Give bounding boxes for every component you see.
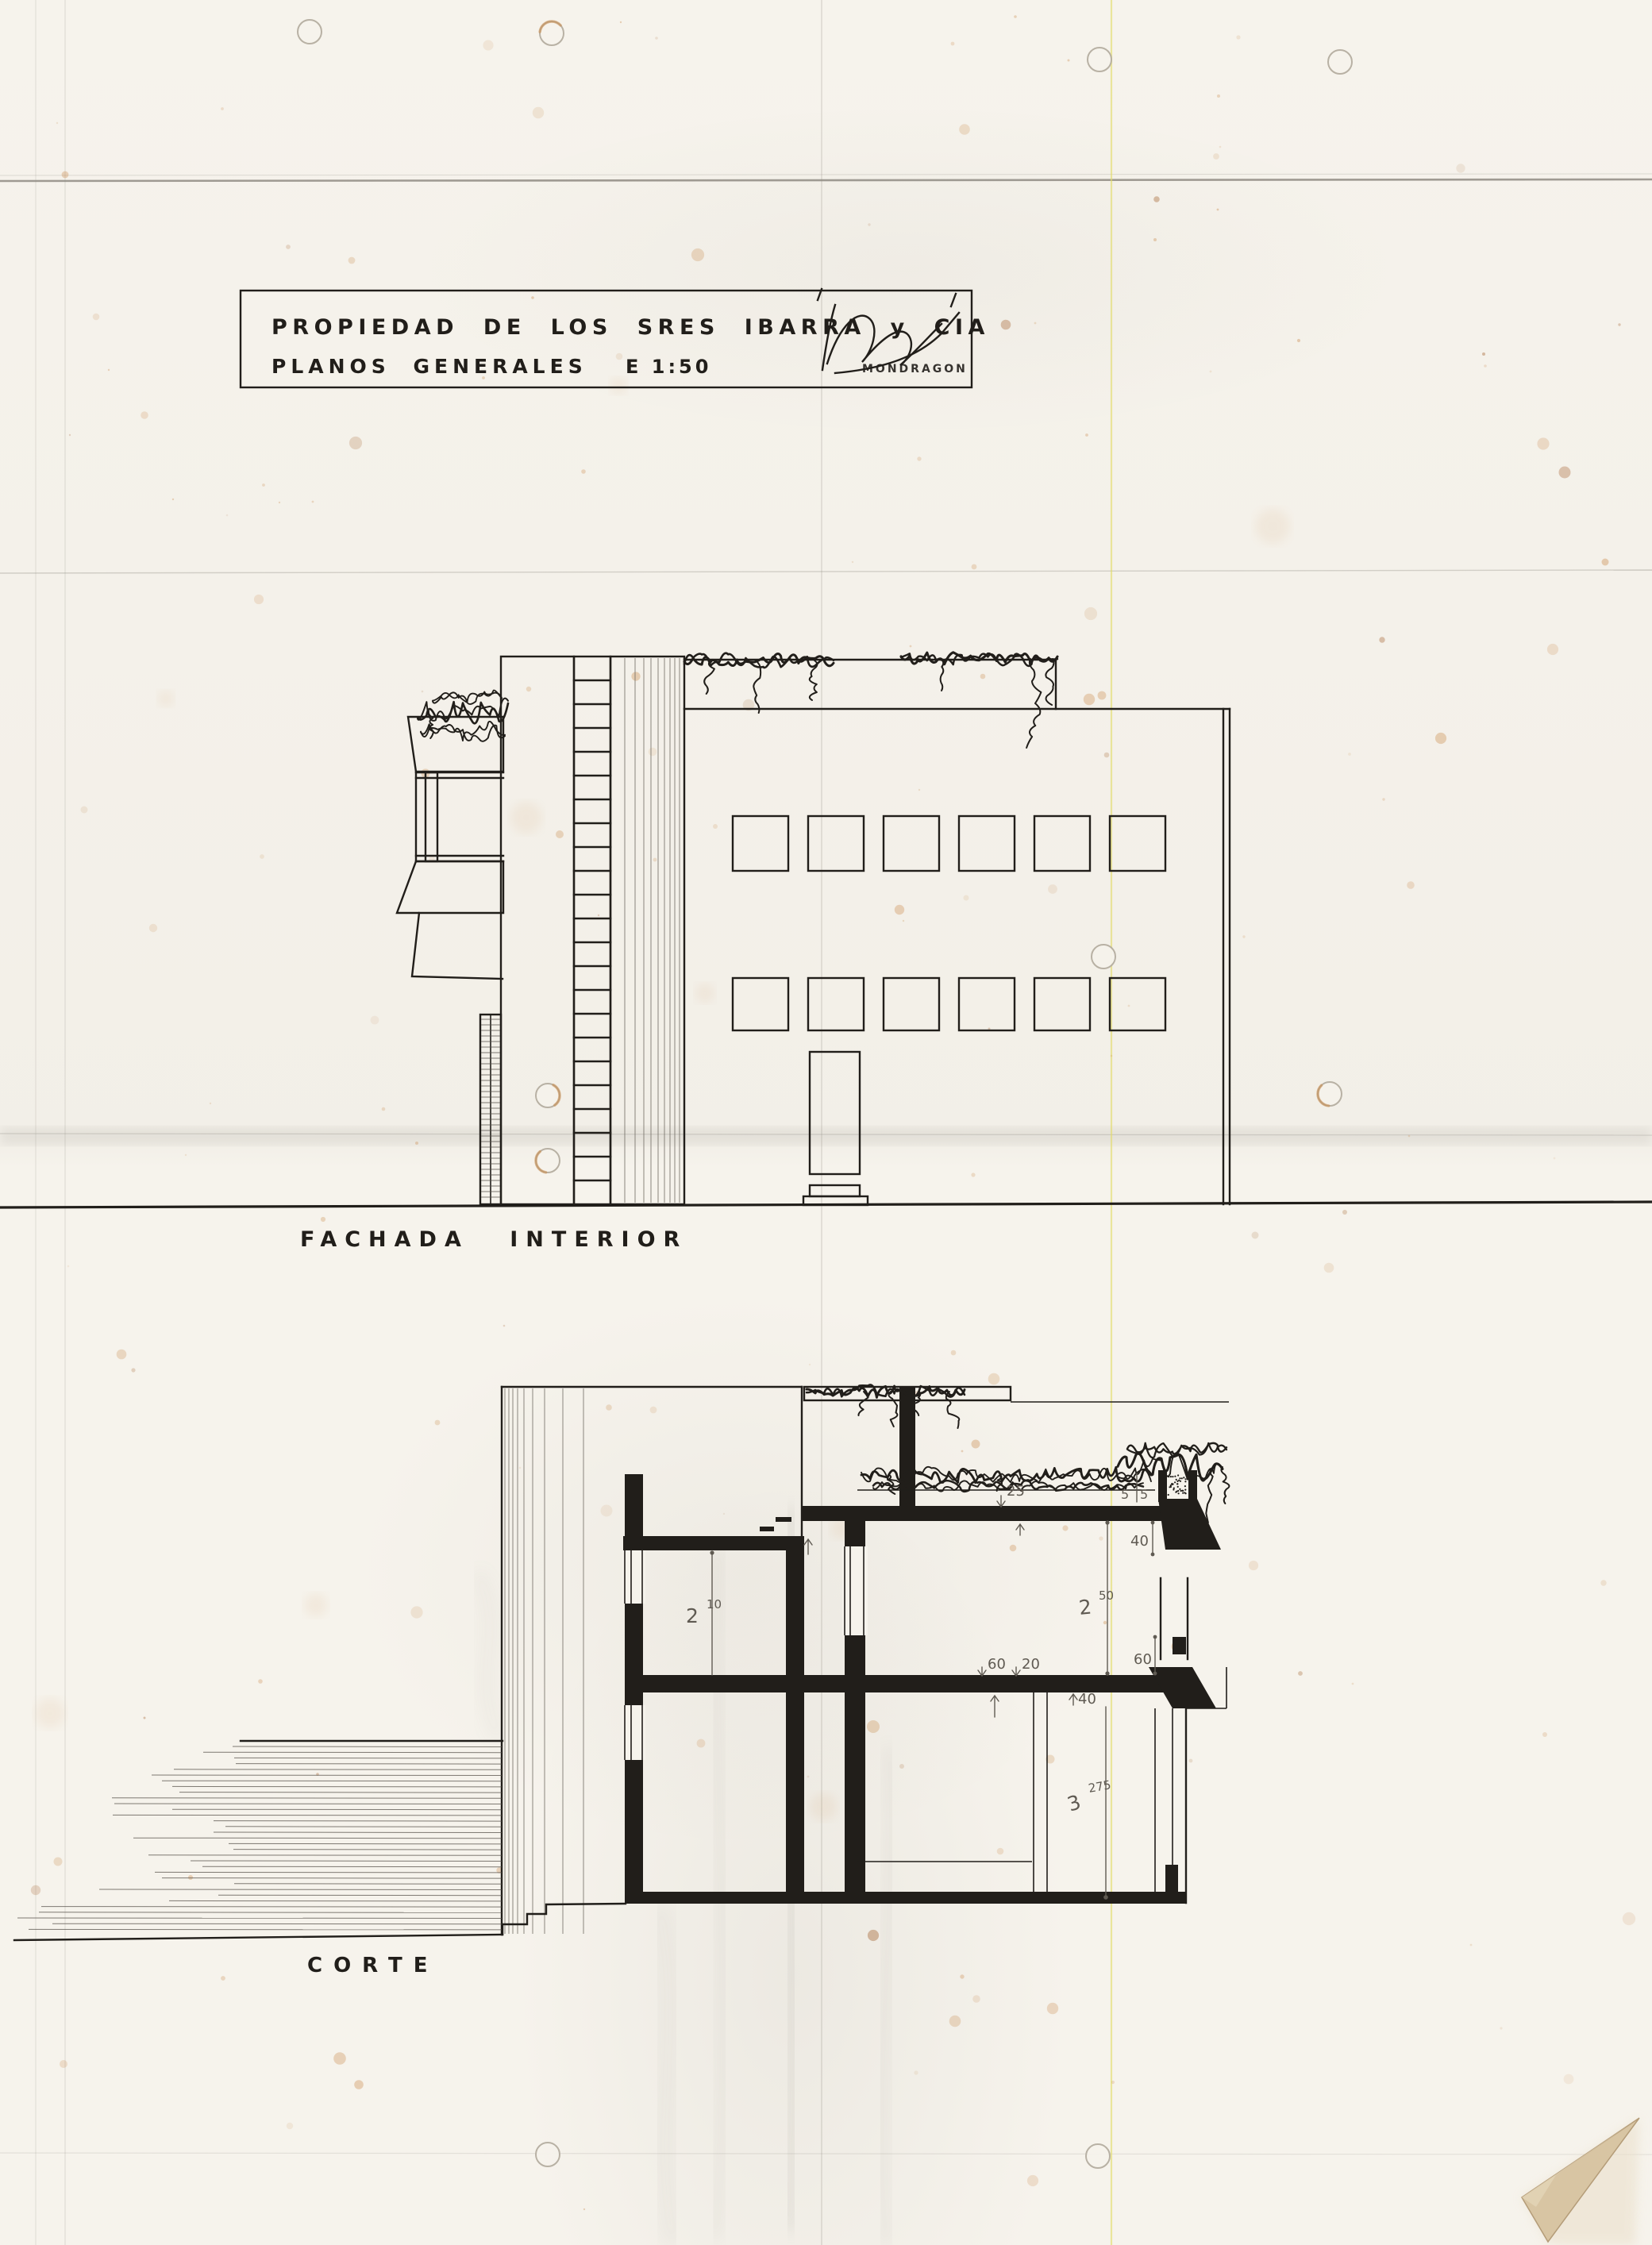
hatch-line	[233, 1850, 502, 1850]
stain	[972, 1440, 980, 1449]
stain	[655, 37, 658, 40]
stain	[964, 895, 969, 901]
section-mid-wall	[786, 1550, 804, 1903]
stipple-dot	[1180, 1490, 1182, 1492]
hatch-line	[172, 1786, 502, 1787]
stain	[371, 1016, 379, 1025]
hatch-line	[39, 1912, 502, 1913]
facade-window	[884, 816, 939, 871]
stain	[1407, 881, 1415, 889]
stain	[918, 789, 920, 791]
stipple-dot	[1185, 1478, 1187, 1480]
stain	[1103, 1621, 1107, 1624]
wall3-window	[842, 1546, 868, 1635]
dim-60-right: 60	[1134, 1651, 1152, 1668]
stain	[895, 905, 904, 915]
stain	[185, 1154, 187, 1156]
dim-5a: 5	[1121, 1487, 1129, 1502]
stain	[321, 1217, 325, 1222]
stain	[67, 1265, 70, 1268]
stain	[949, 2016, 961, 2027]
stain	[1456, 164, 1465, 172]
stain	[62, 171, 69, 179]
stipple-dot	[1176, 1479, 1177, 1481]
hatch-line	[214, 1821, 502, 1822]
stipple-dot	[1177, 1486, 1179, 1488]
hatch-line	[155, 1872, 502, 1873]
signature-name: MONDRAGON	[862, 363, 968, 375]
dim-3-275-sup: 275	[1088, 1777, 1112, 1796]
left-wall-window-upper	[622, 1550, 645, 1604]
hatch-line	[17, 1918, 502, 1919]
dim-60-slab: 60	[988, 1656, 1006, 1673]
stipple-dot	[1175, 1492, 1176, 1493]
floor-slab	[625, 1675, 1175, 1692]
stain	[1085, 433, 1088, 437]
stain	[1219, 146, 1222, 148]
stain	[868, 223, 870, 225]
vine-tendril	[753, 660, 761, 713]
stain	[1084, 694, 1095, 705]
stain-large	[695, 984, 715, 1003]
stain	[1027, 2175, 1038, 2186]
stain	[697, 1739, 706, 1748]
vine-tendril	[941, 659, 944, 691]
vine-tendril	[1026, 659, 1041, 748]
stain	[1217, 94, 1220, 98]
dim-2-10-sup: 10	[707, 1597, 722, 1612]
dim-20-slab: 20	[1022, 1656, 1040, 1673]
stain	[1470, 1944, 1473, 1947]
planter-soil-stipple	[1168, 1474, 1187, 1496]
roof-slab-left	[623, 1536, 804, 1550]
stain	[972, 1995, 980, 2003]
dim-2-10: 2	[686, 1604, 699, 1627]
stain	[1236, 35, 1240, 39]
stipple-dot	[1174, 1476, 1176, 1477]
stain	[1001, 320, 1011, 330]
facade-window	[1110, 816, 1165, 871]
hatch-line	[172, 1809, 502, 1810]
stain	[410, 1606, 422, 1618]
scanned-blueprint-sheet: PROPIEDAD DE LOS SRES IBARRA y CIA PLANO…	[0, 0, 1652, 2245]
facade-window	[808, 816, 864, 871]
stain	[287, 2123, 293, 2129]
stipple-dot	[1170, 1486, 1172, 1488]
stain	[581, 469, 586, 474]
stipple-dot	[1176, 1483, 1178, 1484]
hatch-line	[162, 1781, 502, 1781]
drawing-canvas: PROPIEDAD DE LOS SRES IBARRA y CIA PLANO…	[0, 0, 1652, 2245]
punch-hole	[1328, 50, 1352, 74]
stipple-dot	[1179, 1488, 1180, 1490]
hatch-line	[233, 1746, 502, 1747]
stain	[1084, 607, 1097, 620]
stain	[910, 645, 912, 648]
hatch-line	[52, 1923, 502, 1924]
stain	[1099, 1536, 1103, 1540]
stain	[1352, 1683, 1354, 1685]
stain	[899, 1764, 904, 1769]
stipple-dot	[1180, 1481, 1181, 1482]
facade-drawing: FACHADA INTERIOR	[0, 653, 1652, 1252]
stain	[1484, 364, 1487, 368]
facade-ladder-strip	[574, 657, 610, 1204]
stipple-dot	[1184, 1481, 1186, 1482]
stain-large	[510, 802, 542, 834]
stain	[972, 564, 977, 570]
dim-5b: 5	[1140, 1487, 1148, 1502]
stain	[1542, 1732, 1547, 1737]
vine-tendril	[704, 660, 714, 694]
roof-planter	[1158, 1470, 1221, 1550]
stain	[1249, 1561, 1258, 1570]
stain	[188, 1875, 193, 1880]
facade-label: FACHADA INTERIOR	[300, 1227, 687, 1252]
stipple-dot	[1184, 1492, 1185, 1493]
facade-window	[959, 816, 1015, 871]
stain	[1623, 1912, 1635, 1925]
stipple-dot	[1174, 1481, 1176, 1483]
stain	[519, 1467, 522, 1469]
hatch-line	[203, 1752, 502, 1753]
stain	[1010, 1545, 1017, 1552]
stain-large	[35, 1698, 65, 1728]
stain	[54, 1858, 63, 1866]
stain	[914, 2070, 918, 2074]
stain	[649, 748, 657, 757]
stain	[961, 1450, 964, 1453]
hatch-line	[179, 1793, 502, 1793]
hatch-line	[162, 1878, 502, 1879]
balcony-pier	[426, 772, 437, 861]
stain	[1111, 1055, 1113, 1057]
stain	[867, 1720, 880, 1733]
title-owner-line: PROPIEDAD DE LOS SRES IBARRA y CIA	[271, 315, 990, 340]
stain	[807, 1776, 810, 1778]
stain	[852, 561, 853, 563]
stipple-dot	[1173, 1488, 1174, 1490]
stain	[650, 1407, 657, 1414]
stain	[606, 1404, 612, 1411]
facade-window	[733, 978, 788, 1030]
stain	[713, 824, 718, 829]
stipple-dot	[1179, 1477, 1180, 1479]
stipple-dot	[1172, 1476, 1173, 1477]
facade-balcony	[397, 717, 503, 979]
stain	[1547, 644, 1558, 655]
stain	[286, 245, 291, 249]
hatch-line	[236, 1764, 502, 1765]
stain	[60, 2060, 67, 2068]
stain	[960, 1974, 964, 1978]
hatch-line	[114, 1804, 502, 1804]
hatch-line	[29, 1929, 502, 1930]
stain	[117, 1350, 127, 1360]
stain	[1482, 352, 1485, 356]
punch-hole	[1092, 945, 1115, 968]
hatch-line	[169, 1900, 502, 1901]
stain	[141, 411, 148, 419]
stain	[1435, 733, 1446, 744]
facade-window	[733, 816, 788, 871]
stain	[483, 40, 493, 50]
stain	[56, 122, 58, 124]
stain	[653, 858, 657, 862]
section-label: CORTE	[307, 1954, 439, 1977]
title-scale: E 1:50	[626, 356, 711, 378]
stain	[172, 499, 174, 500]
stain	[348, 257, 356, 264]
stain-large	[158, 691, 174, 707]
dim-3-275: 3	[1065, 1790, 1084, 1816]
stain	[988, 1373, 1000, 1385]
stain	[533, 107, 544, 118]
facade-vines	[418, 653, 1057, 748]
stain-large	[1255, 509, 1290, 544]
stain	[1111, 2081, 1115, 2084]
stain	[1098, 691, 1107, 700]
stain	[149, 924, 157, 932]
punch-hole	[536, 2143, 560, 2166]
stipple-dot	[1172, 1484, 1173, 1485]
stain	[1153, 196, 1160, 202]
facade-window	[959, 978, 1015, 1030]
stain	[691, 248, 704, 261]
dim-40-top: 40	[1130, 1533, 1149, 1550]
stain	[531, 296, 534, 299]
facade-tower	[501, 657, 574, 1204]
stain	[1210, 371, 1212, 373]
stain	[997, 1848, 1004, 1855]
hatch-line	[113, 1815, 502, 1816]
hatch-line	[99, 1889, 502, 1890]
punch-hole	[1086, 2144, 1110, 2168]
door-step-upper	[810, 1185, 860, 1196]
stipple-dot	[1184, 1489, 1186, 1491]
stain	[1408, 1135, 1411, 1138]
stipple-dot	[1182, 1490, 1184, 1492]
stain	[210, 1103, 211, 1104]
stain	[349, 437, 362, 449]
facade-window	[1034, 816, 1090, 871]
stain	[1047, 2003, 1058, 2014]
stain	[144, 1717, 146, 1719]
stain	[1252, 1232, 1259, 1239]
hatch-line	[174, 1769, 502, 1770]
stain	[260, 854, 264, 859]
balcony-awning-upper	[408, 717, 503, 772]
stain	[1602, 559, 1609, 566]
stain	[1189, 1759, 1193, 1763]
vine-scribble	[433, 691, 502, 704]
hatch-line	[133, 1838, 502, 1839]
stipple-dot	[1177, 1490, 1179, 1492]
stain	[959, 124, 970, 135]
stipple-dot	[1184, 1485, 1186, 1487]
stain	[93, 314, 100, 321]
dim-25: 25	[1007, 1483, 1025, 1500]
facade-striped-band	[610, 657, 684, 1204]
stipple-dot	[1170, 1476, 1172, 1477]
left-wall-window-lower	[622, 1705, 645, 1760]
stain	[1500, 2027, 1502, 2029]
hatch-line	[41, 1907, 502, 1908]
stain-large	[304, 1593, 327, 1616]
stain	[131, 1368, 135, 1372]
stain	[1324, 1263, 1334, 1273]
stain	[1537, 437, 1549, 449]
dim-40-under-slab: 40	[1078, 1691, 1096, 1708]
stipple-dot	[1173, 1488, 1175, 1489]
stain-large	[610, 377, 626, 394]
stain	[980, 674, 986, 680]
facade-stripe-lines	[625, 658, 680, 1203]
stain	[1242, 935, 1245, 938]
hatch-line	[202, 1866, 502, 1867]
stain	[1618, 323, 1620, 325]
section-ground-left	[14, 1935, 503, 1940]
facade-window	[1034, 978, 1090, 1030]
stipple-dot	[1176, 1481, 1178, 1482]
stain	[1068, 60, 1070, 62]
stain	[81, 807, 88, 814]
vine-tendril	[1221, 1467, 1229, 1504]
hatch-line	[234, 1758, 502, 1758]
stain	[616, 353, 623, 360]
dim-2-50: 2	[1078, 1595, 1093, 1619]
stain	[1564, 2074, 1574, 2085]
stain	[868, 1930, 879, 1941]
upper-right-glazing	[1161, 1532, 1188, 1659]
stain	[971, 1173, 975, 1176]
facade-window	[808, 978, 864, 1030]
stain	[583, 2208, 585, 2210]
stain	[1034, 322, 1037, 325]
stipple-dot	[1168, 1494, 1169, 1496]
hatch-line	[112, 1798, 502, 1799]
title-block: PROPIEDAD DE LOS SRES IBARRA y CIA PLANO…	[241, 289, 990, 387]
stain	[1298, 1671, 1303, 1676]
hatch-line	[225, 1827, 502, 1827]
stain	[1297, 339, 1300, 342]
stain	[312, 501, 314, 503]
stain	[1379, 637, 1384, 642]
section-ground-steps	[503, 1904, 626, 1935]
stain	[598, 915, 599, 916]
stain	[601, 1505, 613, 1517]
stain	[254, 595, 264, 604]
stain	[1559, 467, 1571, 479]
stain	[951, 42, 955, 46]
hatch-line	[191, 1861, 502, 1862]
stain	[435, 1420, 441, 1426]
facade-brick-pier	[480, 1015, 501, 1204]
dim-2-50-sup: 50	[1099, 1588, 1114, 1603]
stain	[1153, 238, 1157, 241]
stain	[258, 1679, 263, 1684]
stipple-dot	[1181, 1477, 1183, 1479]
stain	[108, 369, 110, 371]
stain	[31, 1885, 40, 1895]
stain	[631, 672, 640, 680]
stain	[556, 830, 564, 838]
stain	[1600, 1580, 1606, 1585]
title-plans-line: PLANOS GENERALES	[271, 355, 587, 378]
stain	[1342, 1210, 1347, 1215]
stain	[221, 107, 224, 110]
stain	[226, 514, 229, 517]
stipple-dot	[1182, 1492, 1184, 1494]
vine-tendril	[888, 1392, 897, 1427]
stain	[917, 456, 921, 460]
stain	[503, 1325, 506, 1327]
stain	[221, 1976, 225, 1981]
stain	[1104, 753, 1110, 758]
facade-window	[1110, 978, 1165, 1030]
hatch-line	[218, 1895, 502, 1896]
terrace-hatch-lines	[17, 1746, 502, 1930]
facade-windows-lower	[733, 978, 1165, 1030]
stain	[1014, 15, 1017, 18]
stipple-dot	[1178, 1492, 1180, 1494]
stain	[382, 1107, 386, 1111]
roof-slab-right	[802, 1506, 1171, 1521]
stain	[333, 2052, 346, 2065]
section-stripe-lines	[505, 1388, 583, 1934]
facade-windows-upper	[733, 816, 1165, 871]
scan-corner-artifact	[1522, 2118, 1639, 2245]
stain	[415, 1142, 418, 1145]
balcony-skirt	[412, 913, 503, 979]
ground-slab	[625, 1892, 1186, 1904]
stain-large	[810, 1793, 838, 1821]
stain	[620, 21, 622, 23]
stipple-dot	[1183, 1477, 1184, 1478]
left-parapet-stub	[625, 1474, 643, 1538]
facade-window	[884, 978, 939, 1030]
stain	[1554, 1157, 1556, 1160]
stain	[279, 502, 280, 503]
stain	[354, 2080, 364, 2089]
punch-hole	[298, 20, 322, 44]
stain	[1348, 753, 1351, 756]
stain	[1062, 1525, 1068, 1531]
hatch-line	[148, 1855, 502, 1856]
stain	[1213, 153, 1219, 160]
stipple-dot	[1177, 1474, 1179, 1476]
hatch-line	[229, 1843, 502, 1844]
ladder-rungs	[574, 680, 610, 1180]
stain	[1382, 798, 1384, 800]
balcony-awning-lower	[397, 861, 503, 913]
stain	[422, 691, 424, 693]
hatch-line	[152, 1775, 502, 1776]
stain	[526, 687, 531, 691]
vine-tendril	[1045, 659, 1053, 705]
stain	[262, 483, 265, 487]
punch-hole	[1088, 48, 1111, 71]
stain	[69, 434, 71, 436]
stain	[1048, 884, 1057, 894]
section-drawing: 2 10 2 50 3 275 25 5 5 40 60	[14, 1384, 1229, 1977]
hatch-line	[214, 1832, 502, 1833]
stain	[723, 1513, 725, 1515]
hatch-line	[234, 1884, 502, 1885]
vine-tendril	[858, 1392, 868, 1415]
stain	[903, 920, 904, 922]
foxing-stains	[31, 15, 1635, 2210]
